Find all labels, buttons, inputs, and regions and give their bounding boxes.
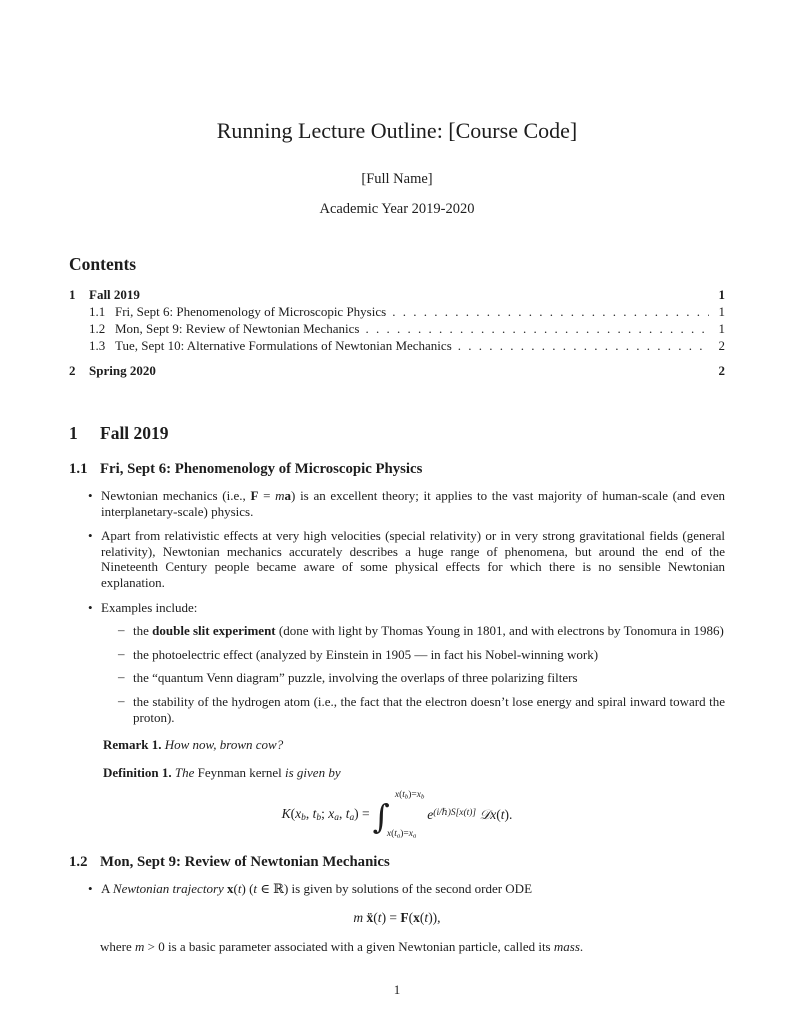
document-author: [Full Name] [69,171,725,188]
integral-limits: x(tb)=xb x(ta)=xa [391,793,424,837]
formula-lhs: K(xb, tb; xa, ta) = [282,806,370,824]
toc-entry-number: 2 [69,363,89,378]
mass-paragraph: where m > 0 is a basic parameter associa… [69,939,725,955]
subsection-title: Fri, Sept 6: Phenomenology of Microscopi… [100,461,422,479]
toc-entry-label: Tue, Sept 10: Alternative Formulations o… [115,338,452,353]
feynman-kernel-formula: K(xb, tb; xa, ta) = ∫ x(tb)=xb x(ta)=xa … [69,793,725,837]
toc-entry-number: 1.2 [89,321,115,336]
toc-entry-label: Fri, Sept 6: Phenomenology of Microscopi… [115,304,386,319]
toc-dot-leader [365,321,709,336]
contents-heading: Contents [69,254,725,275]
toc-entry-label: Fall 2019 [89,287,140,302]
bullet-list-1-1: Newtonian mechanics (i.e., F = ma) is an… [69,488,725,725]
integral-upper-limit: x(tb)=xb [395,790,424,801]
example-list: the double slit experiment (done with li… [69,623,725,725]
integral-lower-limit: x(ta)=xa [387,829,416,840]
section-number: 1 [69,423,100,444]
section-title: Fall 2019 [100,423,169,444]
example-item: the photoelectric effect (analyzed by Ei… [69,647,725,663]
newton-ode-formula: m ẍ(t) = F(x(t)), [69,910,725,926]
toc-entry-1-3[interactable]: 1.3 Tue, Sept 10: Alternative Formulatio… [69,338,725,353]
example-item: the stability of the hydrogen atom (i.e.… [69,694,725,725]
toc-entry-page: 1 [715,321,725,336]
toc-entry-spring-2020[interactable]: 2 Spring 2020 2 [69,363,725,378]
table-of-contents: 1 Fall 2019 1 1.1 Fri, Sept 6: Phenomeno… [69,287,725,378]
definition-label: Definition 1. [103,765,172,780]
toc-entry-page: 1 [715,287,725,302]
toc-entry-1-2[interactable]: 1.2 Mon, Sept 9: Review of Newtonian Mec… [69,321,725,336]
toc-entry-fall-2019[interactable]: 1 Fall 2019 1 [69,287,725,302]
page-number: 1 [0,982,794,998]
example-item: the “quantum Venn diagram” puzzle, invol… [69,670,725,686]
subsection-heading-1-1: 1.1 Fri, Sept 6: Phenomenology of Micros… [69,461,725,479]
toc-entry-label: Mon, Sept 9: Review of Newtonian Mechani… [115,321,359,336]
toc-dot-leader [458,338,709,353]
formula-integrand: e(i/ℏ)S[x(t)] 𝒟x(t). [427,807,512,823]
toc-entry-number: 1.1 [89,304,115,319]
bullet-item: Apart from relativistic effects at very … [69,528,725,590]
toc-entry-1-1[interactable]: 1.1 Fri, Sept 6: Phenomenology of Micros… [69,304,725,319]
subsection-heading-1-2: 1.2 Mon, Sept 9: Review of Newtonian Mec… [69,854,725,872]
toc-entry-number: 1 [69,287,89,302]
bullet-item: Examples include: [69,600,725,616]
toc-entry-number: 1.3 [89,338,115,353]
remark-body: How now, brown cow? [165,737,283,752]
document-title: Running Lecture Outline: [Course Code] [69,118,725,143]
document-date: Academic Year 2019-2020 [69,201,725,218]
subsection-number: 1.2 [69,854,100,872]
bullet-item: A Newtonian trajectory x(t) (t ∈ ℝ) is g… [69,881,725,897]
toc-dot-leader [392,304,709,319]
bullet-list-1-2: A Newtonian trajectory x(t) (t ∈ ℝ) is g… [69,881,725,897]
definition-body: The Feynman kernel is given by [175,765,341,780]
toc-entry-page: 2 [715,363,725,378]
toc-entry-page: 2 [715,338,725,353]
toc-entry-page: 1 [715,304,725,319]
document-page: Running Lecture Outline: [Course Code] [… [0,0,794,1028]
example-item: the double slit experiment (done with li… [69,623,725,639]
bullet-item: Newtonian mechanics (i.e., F = ma) is an… [69,488,725,519]
toc-entry-label: Spring 2020 [89,363,156,378]
subsection-title: Mon, Sept 9: Review of Newtonian Mechani… [100,854,390,872]
definition-paragraph: Definition 1. The Feynman kernel is give… [69,765,725,781]
subsection-number: 1.1 [69,461,100,479]
section-heading-fall-2019: 1 Fall 2019 [69,423,725,444]
integral-sign: ∫ [373,800,390,833]
remark-paragraph: Remark 1. How now, brown cow? [69,737,725,753]
formula-row: K(xb, tb; xa, ta) = ∫ x(tb)=xb x(ta)=xa … [282,793,513,837]
remark-label: Remark 1. [103,737,162,752]
